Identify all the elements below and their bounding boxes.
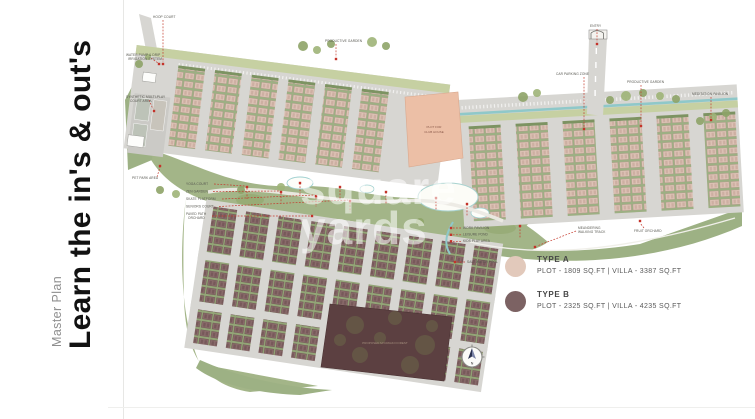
plan-label: MEDITATION PAVILION (692, 92, 729, 96)
forest-label: PROPOSED MIYAWAKI FOREST (362, 341, 408, 345)
legend-item-type-b: TYPE B PLOT - 2325 SQ.FT | VILLA - 4235 … (505, 290, 681, 312)
plan-label: FRUIT ORCHARD (634, 229, 662, 233)
plot-type-legend: TYPE A PLOT - 1809 SQ.FT | VILLA - 3387 … (505, 255, 681, 325)
plan-label: PRODUCTIVE GARDEN (627, 80, 665, 84)
plan-label: WORK PAVILION (463, 226, 490, 230)
plan-label: ZEN GARDEN (186, 190, 208, 194)
legend-item-type-a: TYPE A PLOT - 1809 SQ.FT | VILLA - 3387 … (505, 255, 681, 277)
type-a-detail: PLOT - 1809 SQ.FT | VILLA - 3387 SQ.FT (537, 268, 681, 275)
plan-label: CAR PARKING ZONE (556, 72, 589, 76)
plan-label: IRRIGATION SYSTEM (128, 57, 162, 61)
compass-north-label: N (471, 362, 474, 366)
type-a-label: TYPE A (537, 255, 681, 264)
plan-label: PET PARK AREA (132, 176, 159, 180)
plan-label: SALT WATER POOL (467, 260, 498, 264)
plan-label: LEISURE POND (463, 233, 489, 237)
entry-gate-icon (589, 30, 607, 39)
plan-label: ENTRY (590, 24, 602, 28)
clubhouse-plot: PLOT FOR CLUB HOUSE (405, 92, 463, 167)
type-b-detail: PLOT - 2325 SQ.FT | VILLA - 4235 SQ.FT (537, 303, 681, 310)
type-b-label: TYPE B (537, 290, 681, 299)
plan-label: COURT AREA (130, 99, 152, 103)
master-plan-card: Master Plan Learn the in's & out's (0, 0, 755, 419)
plan-label: HOOP COURT (153, 15, 176, 19)
site-plan-drawing: PROPOSED MIYAWAKI FOREST PLOT FOR CLUB H… (0, 0, 755, 419)
clubhouse-label-line2: CLUB HOUSE (424, 130, 444, 134)
plan-label: ORCHARD (188, 216, 205, 220)
plan-label: PRODUCTIVE GARDEN (325, 39, 363, 43)
clubhouse-label-line1: PLOT FOR (427, 125, 443, 129)
plan-label: SENIORS COURT (186, 205, 214, 209)
type-b-swatch (505, 291, 526, 312)
type-a-swatch (505, 256, 526, 277)
plan-label: SKATE PLATFORM (186, 197, 216, 201)
plan-label: WALKING TRACK (578, 230, 606, 234)
plan-label: KIDS PLAY AREA (463, 239, 491, 243)
forest-block: PROPOSED MIYAWAKI FOREST (321, 304, 452, 381)
plan-label: YOGA COURT (186, 182, 208, 186)
